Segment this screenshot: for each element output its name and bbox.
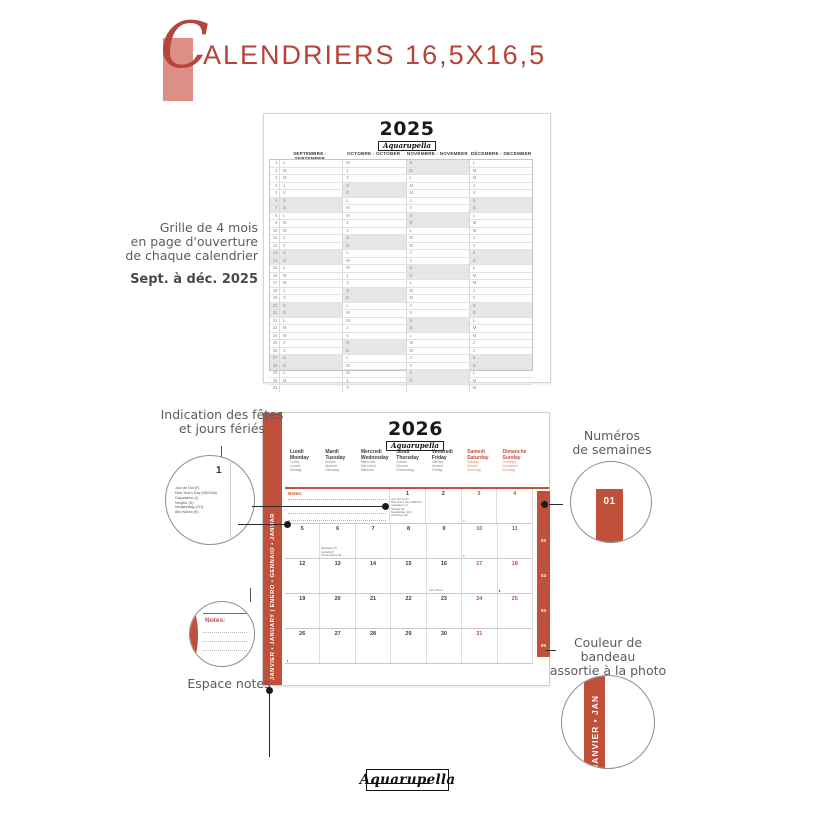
date-number: 8 — [391, 524, 425, 532]
date-number: 18 — [498, 559, 532, 567]
day-cell: 14 — [355, 559, 390, 593]
catalog-page: C ALENDRIERS 16,5X16,5 2025 Aquarupella … — [0, 0, 815, 815]
notes-zoom-circle: Notes: — [189, 601, 255, 667]
date-number: 25 — [498, 594, 532, 602]
day-cell: 3○ — [461, 489, 497, 523]
cell-note: Lune d'hiver — [429, 589, 443, 592]
grid-row: 19VDMV — [270, 294, 532, 302]
grid-row: 13SLJS — [270, 249, 532, 257]
zoomed-month-band: JANVIER • JAN — [584, 675, 605, 769]
date-number: 20 — [320, 594, 354, 602]
day-cell: 30 — [426, 629, 461, 663]
grid-row: 7DMVD — [270, 204, 532, 212]
day-cell: 5 — [285, 524, 319, 558]
day-cell: 6Épiphanie (F)Epifania (I)Día de Reyes (… — [319, 524, 354, 558]
notes-label: Notes: — [285, 489, 389, 496]
date-number: 29 — [391, 629, 425, 637]
calendar-week-row: 56Épiphanie (F)Epifania (I)Día de Reyes … — [285, 524, 532, 559]
date-number: 7 — [356, 524, 390, 532]
annotation-holidays: Indication des fêteset jours fériés — [148, 408, 296, 436]
four-month-grid: 1LMSL2MJDM3MVLM4JSMJ5VDMV6SLJS7DMVD8LMSL… — [269, 159, 533, 371]
month-band: JANVIER • JANUARY | ENERO • GENNAIO • JA… — [263, 413, 282, 685]
date-number: 6 — [320, 524, 354, 532]
notes-line — [288, 499, 386, 500]
week-number: 02 — [537, 538, 550, 543]
date-number: 22 — [391, 594, 425, 602]
day-cell: 26◑ — [285, 629, 319, 663]
month-band-label: JANVIER • JANUARY | ENERO • GENNAIO • JA… — [270, 513, 276, 680]
annotation-grille-sub: Sept. à déc. 2025 — [118, 272, 258, 287]
zoomed-notes-rule — [203, 613, 247, 614]
calendar-2025-preview: 2025 Aquarupella SEPTEMBRE - SEPTEMBEROC… — [263, 113, 551, 383]
grid-row: 20SLJS — [270, 302, 532, 310]
weekday-header: VendrediFridayViernesVenerdìFreitag — [427, 449, 462, 487]
annotation-notes-text: Espace notes — [187, 676, 270, 691]
zoomed-month-band-label: JANVIER • JAN — [590, 695, 600, 769]
date-number: 14 — [356, 559, 390, 567]
date-number: 15 — [391, 559, 425, 567]
weekday-headers: LundiMondayLunesLunedìMontagMardiTuesday… — [285, 449, 533, 487]
calendar-week-row: 26◑2728293031 — [285, 629, 532, 664]
grid-row: 5VDMV — [270, 189, 532, 197]
day-letter-cell — [406, 385, 469, 392]
grid-row: 16MJDM — [270, 272, 532, 280]
day-cell: 7 — [355, 524, 390, 558]
calendar-week-row: 19202122232425 — [285, 594, 532, 629]
day-cell: 4 — [496, 489, 532, 523]
aquarupella-logo-small-2025: Aquarupella — [378, 141, 436, 151]
day-cell: 12 — [285, 559, 319, 593]
day-cell: 23 — [426, 594, 461, 628]
calendar-2026-preview: JANVIER • JANUARY | ENERO • GENNAIO • JA… — [262, 412, 550, 686]
aquarupella-logo-text: Aquarupella — [360, 772, 456, 788]
callout-dot-holiday — [382, 503, 389, 510]
day-cell: 18● — [497, 559, 532, 593]
date-number: 17 — [462, 559, 496, 567]
day-cell: 31 — [461, 629, 496, 663]
grid-row: 23MJDM — [270, 324, 532, 332]
aquarupella-logo-footer: Aquarupella — [366, 769, 449, 791]
day-cell: 19 — [285, 594, 319, 628]
leader-line — [252, 506, 386, 507]
grid-row: 12VDMV — [270, 242, 532, 250]
zoomed-holiday-list: Jour de l'An (F)New Year's Day (GB/USA)C… — [175, 486, 217, 515]
day-cell: 9 — [426, 524, 461, 558]
moon-phase-icon: ● — [499, 589, 501, 593]
day-cell: 21 — [355, 594, 390, 628]
grid-row: 2MJDM — [270, 167, 532, 175]
annotation-week-numbers: Numérosde semaines — [558, 429, 666, 457]
date-number: 12 — [285, 559, 319, 567]
grid-row: 30MJDM — [270, 377, 532, 385]
weekday-header: JeudiThursdayJuevesGiovedìDonnerstag — [391, 449, 426, 487]
holiday-list: Jour de l'An (F)New Year's Day (GB/USA)C… — [391, 498, 421, 517]
date-number: 23 — [427, 594, 461, 602]
zoomed-band-edge — [189, 607, 198, 663]
zoomed-notes-label: Notes: — [205, 617, 225, 624]
holiday-list: Épiphanie (F)Epifania (I)Día de Reyes (E… — [321, 547, 341, 557]
band-zoom-circle: JANVIER • JAN — [561, 675, 655, 769]
notes-line — [288, 513, 386, 514]
day-cell: 11 — [497, 524, 532, 558]
grid-row: 10MVLM — [270, 227, 532, 235]
day-cell: 13 — [319, 559, 354, 593]
zoomed-week-band: 01 — [596, 489, 623, 543]
grid-row: 27SLJS — [270, 354, 532, 362]
grid-row: 8LMSL — [270, 212, 532, 220]
grid-row: 18JSMJ — [270, 287, 532, 295]
date-number: 3 — [462, 489, 497, 497]
day-cell: 25 — [497, 594, 532, 628]
title-initial: C — [160, 14, 209, 78]
year-2025: 2025 — [264, 118, 550, 140]
day-letter-cell: V — [342, 385, 405, 392]
grid-row: 22LMSL — [270, 317, 532, 325]
grid-row: 21DMVD — [270, 309, 532, 317]
day-letter-cell: M — [469, 385, 532, 392]
grid-row: 14DMVD — [270, 257, 532, 265]
grid-row: 24MVLM — [270, 332, 532, 340]
weekday-header: SamediSaturdaySábadoSabatoSamstag — [462, 449, 497, 487]
day-cell: 2 — [425, 489, 461, 523]
weekday-header: MardiTuesdayMartesMartedìDienstag — [320, 449, 355, 487]
grid-row: 3MVLM — [270, 174, 532, 182]
day-letter-cell — [279, 385, 342, 392]
calendar-week-row: 1213141516Lune d'hiver1718● — [285, 559, 532, 594]
zoomed-notes-line — [203, 650, 247, 651]
leader-line — [269, 690, 270, 757]
date-number: 9 — [427, 524, 461, 532]
week-number-band: 0102030405 — [537, 491, 550, 657]
week-number: 04 — [537, 608, 550, 613]
page-title: ALENDRIERS 16,5X16,5 — [203, 40, 546, 71]
day-cell: 22 — [390, 594, 425, 628]
date-number: 24 — [462, 594, 496, 602]
date-number: 2 — [426, 489, 461, 497]
grid-row: 25JSMJ — [270, 339, 532, 347]
day-cell: 17 — [461, 559, 496, 593]
date-number — [498, 629, 532, 631]
cell-border-line — [230, 462, 231, 538]
day-number: 31 — [270, 385, 279, 392]
holidays-zoom-circle: 1 Jour de l'An (F)New Year's Day (GB/USA… — [165, 455, 255, 545]
date-number: 16 — [427, 559, 461, 567]
zoomed-week-number: 01 — [596, 496, 623, 507]
callout-dot-band — [266, 687, 273, 694]
date-number: 28 — [356, 629, 390, 637]
zoomed-day-number: 1 — [216, 465, 222, 476]
leader-line — [238, 524, 288, 525]
day-cell: 1Jour de l'An (F)New Year's Day (GB/USA)… — [389, 489, 425, 523]
moon-phase-icon: ○ — [463, 519, 465, 523]
grid-row: 11JSMJ — [270, 234, 532, 242]
date-number: 4 — [497, 489, 532, 497]
weekday-header: LundiMondayLunesLunedìMontag — [285, 449, 320, 487]
day-cell: 20 — [319, 594, 354, 628]
grid-row: 4JSMJ — [270, 182, 532, 190]
moon-phase-icon: ◐ — [463, 554, 465, 558]
day-cell: 24 — [461, 594, 496, 628]
callout-dot-week — [541, 501, 548, 508]
grid-row: 15LMSL — [270, 264, 532, 272]
day-cell: 8 — [390, 524, 425, 558]
grid-row: 17MVLM — [270, 279, 532, 287]
date-number: 30 — [427, 629, 461, 637]
day-cell: 16Lune d'hiver — [426, 559, 461, 593]
week-number: 03 — [537, 573, 550, 578]
date-number: 10 — [462, 524, 496, 532]
day-cell: 29 — [390, 629, 425, 663]
grid-row: 26VDMV — [270, 347, 532, 355]
logo-strike-line — [368, 783, 430, 784]
date-number: 13 — [320, 559, 354, 567]
day-cell: 28 — [355, 629, 390, 663]
year-2026: 2026 — [282, 418, 549, 440]
notes-line — [288, 520, 386, 521]
callout-dot-notes-line — [284, 521, 291, 528]
zoomed-holiday-line: Año Nuevo (E) — [175, 510, 217, 515]
leader-line — [546, 650, 556, 651]
grid-row: 28DMVD — [270, 362, 532, 370]
annotation-grille: Grille de 4 moisen page d'ouverturede ch… — [118, 221, 258, 263]
day-cell: 15 — [390, 559, 425, 593]
leader-line — [549, 504, 563, 505]
day-cell: 27 — [319, 629, 354, 663]
week-number-zoom-circle: 01 — [570, 461, 652, 543]
day-cell: 10◐ — [461, 524, 496, 558]
date-number: 31 — [462, 629, 496, 637]
date-number: 27 — [320, 629, 354, 637]
grid-row: 6SLJS — [270, 197, 532, 205]
date-number: 11 — [498, 524, 532, 532]
grid-row: 9MJDM — [270, 219, 532, 227]
notes-tick — [250, 588, 251, 602]
day-cell — [497, 629, 532, 663]
date-number: 19 — [285, 594, 319, 602]
date-number: 26 — [285, 629, 319, 637]
zoomed-notes-line — [203, 641, 247, 642]
zoomed-notes-line — [203, 632, 247, 633]
grid-row: 31VM — [270, 384, 532, 392]
grid-row: 29LMSL — [270, 369, 532, 377]
january-grid: Notes:1Jour de l'An (F)New Year's Day (G… — [285, 489, 533, 664]
weekday-header: MercrediWednesdayMiércolesMercoledìMittw… — [356, 449, 391, 487]
weekday-header: DimancheSundayDomingoDomenicaSonntag — [498, 449, 533, 487]
moon-phase-icon: ◑ — [286, 659, 288, 663]
date-number: 21 — [356, 594, 390, 602]
zoomed-holiday-line: New Year's Day (GB/USA) — [175, 491, 217, 496]
date-number: 1 — [390, 489, 425, 497]
